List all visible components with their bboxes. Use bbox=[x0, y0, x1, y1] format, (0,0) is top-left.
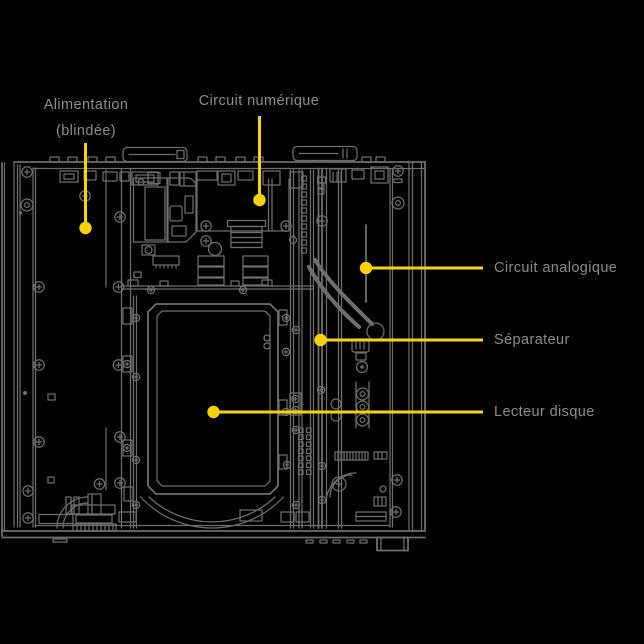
label-power-line1: Alimentation bbox=[16, 92, 156, 118]
digital-board bbox=[122, 173, 314, 294]
chassis-outline bbox=[2, 161, 425, 538]
callout-dot-disc bbox=[207, 406, 219, 418]
label-analog: Circuit analogique bbox=[494, 259, 617, 277]
rear-panel-connectors bbox=[50, 147, 388, 195]
label-power: Alimentation (blindée) bbox=[16, 92, 156, 144]
label-digital: Circuit numérique bbox=[178, 92, 340, 110]
callout-dot-digital bbox=[253, 194, 265, 206]
label-power-line2: (blindée) bbox=[16, 118, 156, 144]
callout-dot-separator bbox=[314, 334, 326, 346]
annotated-internals-diagram: Alimentation (blindée) Circuit numérique… bbox=[0, 0, 644, 644]
chassis-wireframe bbox=[2, 147, 425, 551]
callout-disc bbox=[207, 406, 483, 418]
label-separator: Séparateur bbox=[494, 331, 570, 349]
chassis-foot bbox=[53, 538, 408, 551]
power-supply-area bbox=[19, 167, 136, 531]
callout-dot-power bbox=[79, 222, 91, 234]
separator-wall bbox=[290, 169, 327, 529]
callout-dot-analog bbox=[360, 262, 372, 274]
label-disc: Lecteur disque bbox=[494, 403, 595, 421]
callout-separator bbox=[314, 334, 483, 346]
